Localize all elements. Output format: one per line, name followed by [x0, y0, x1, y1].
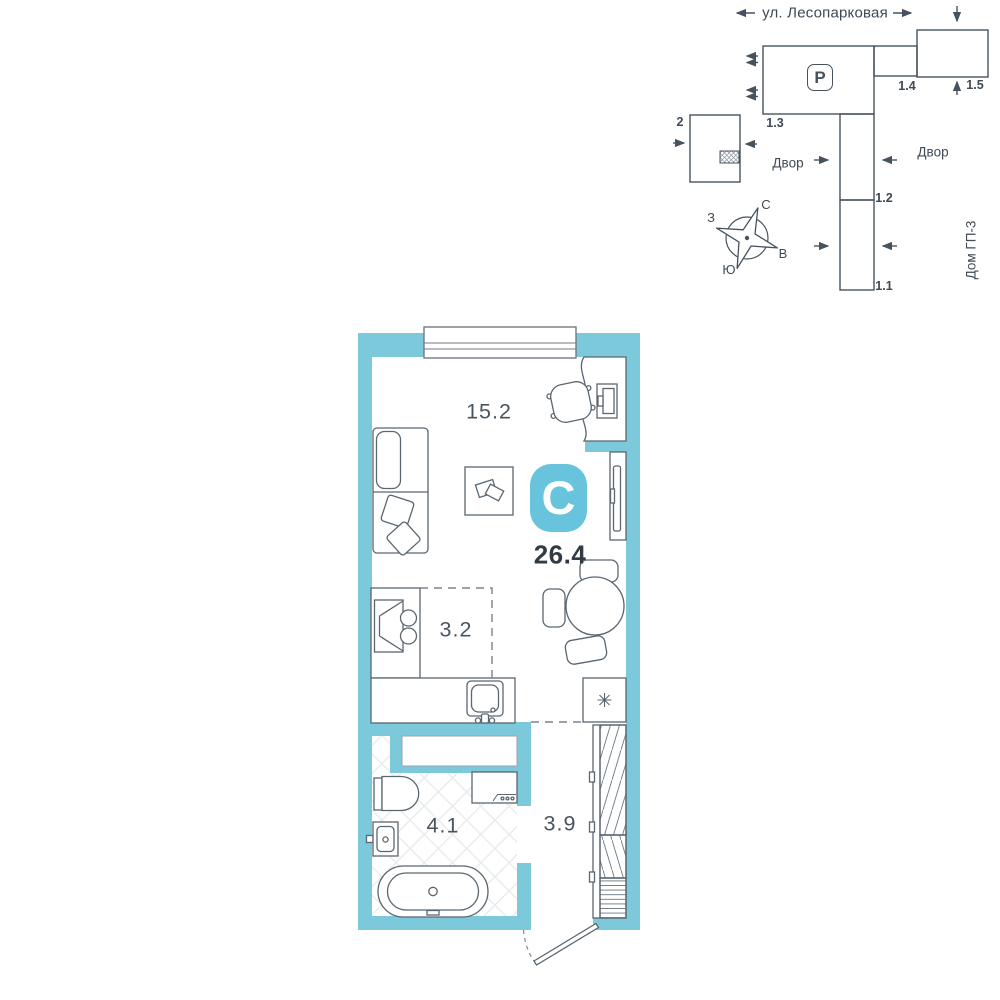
site-building-1-4 — [874, 46, 917, 76]
wardrobe — [590, 725, 627, 918]
building-1-3-label: 1.3 — [766, 116, 783, 130]
plan-drawing: С З В Ю — [0, 0, 1000, 1000]
living-area-label: 15.2 — [466, 400, 512, 425]
building-2-label: 2 — [677, 115, 684, 129]
studio-type-badge: С — [530, 464, 587, 532]
site-arrows — [673, 6, 957, 246]
compass-east-label: В — [779, 246, 788, 261]
bathtub — [378, 866, 488, 917]
house-ref-label: Дом ГП-3 — [964, 221, 979, 280]
washing-machine — [472, 772, 517, 803]
window — [424, 327, 576, 358]
courtyard-right-label: Двор — [917, 145, 948, 160]
dining-chair — [543, 589, 565, 627]
coffee-table — [465, 467, 513, 515]
building-1-1-label: 1.1 — [875, 279, 892, 293]
hallway-area-label: 3.9 — [544, 812, 577, 837]
site-building-2 — [690, 115, 740, 182]
building-1-4-label: 1.4 — [898, 79, 915, 93]
dining-table — [566, 577, 624, 635]
bathroom-area-label: 4.1 — [427, 814, 460, 839]
parking-letter: P — [814, 68, 825, 88]
courtyard-left-label: Двор — [772, 156, 803, 171]
toilet — [374, 777, 419, 811]
total-area-label: 26.4 — [534, 540, 587, 571]
floorplan-page: С З В Ю — [0, 0, 1000, 1000]
tv-unit — [610, 452, 626, 540]
duct-niche — [402, 736, 517, 766]
compass-west-label: З — [707, 210, 715, 225]
compass-north-label: С — [761, 197, 770, 212]
studio-type-letter: С — [542, 474, 576, 521]
site-building-1-5 — [917, 30, 988, 77]
current-building-marker — [720, 151, 739, 163]
entry-door — [524, 924, 599, 966]
snowflake-icon — [598, 693, 612, 707]
kitchen-area-label: 3.2 — [440, 618, 473, 643]
sofa — [373, 428, 428, 556]
building-1-5-label: 1.5 — [966, 78, 983, 92]
door-swing-arc — [524, 930, 535, 961]
fridge — [583, 678, 626, 722]
compass-rose: С З В Ю — [707, 197, 787, 277]
site-building-1-1 — [840, 200, 874, 290]
building-1-2-label: 1.2 — [875, 191, 892, 205]
monitor — [597, 384, 617, 418]
dining-chair — [564, 635, 608, 666]
parking-icon: P — [807, 64, 833, 91]
compass-south-label: Ю — [722, 262, 735, 277]
site-building-1-2 — [840, 114, 874, 200]
door-leaf — [534, 924, 599, 966]
street-label: ул. Лесопарковая — [762, 5, 888, 22]
